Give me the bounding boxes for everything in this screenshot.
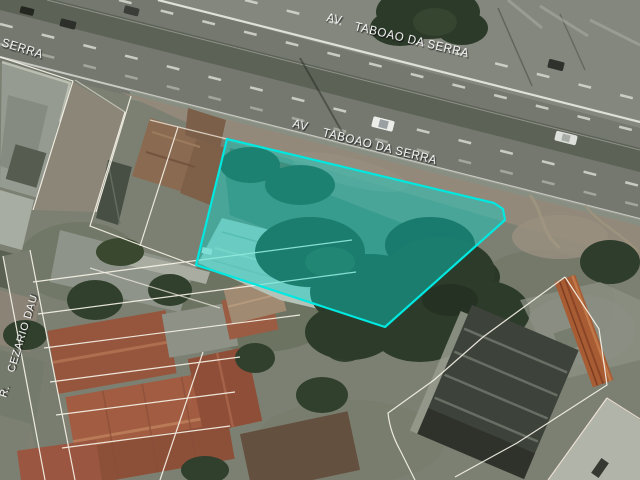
- satellite-imagery: AV TABOAO DA SERRA AV TABOAO DA SERRA SE…: [0, 0, 640, 480]
- map-viewport[interactable]: AV TABOAO DA SERRA AV TABOAO DA SERRA SE…: [0, 0, 640, 480]
